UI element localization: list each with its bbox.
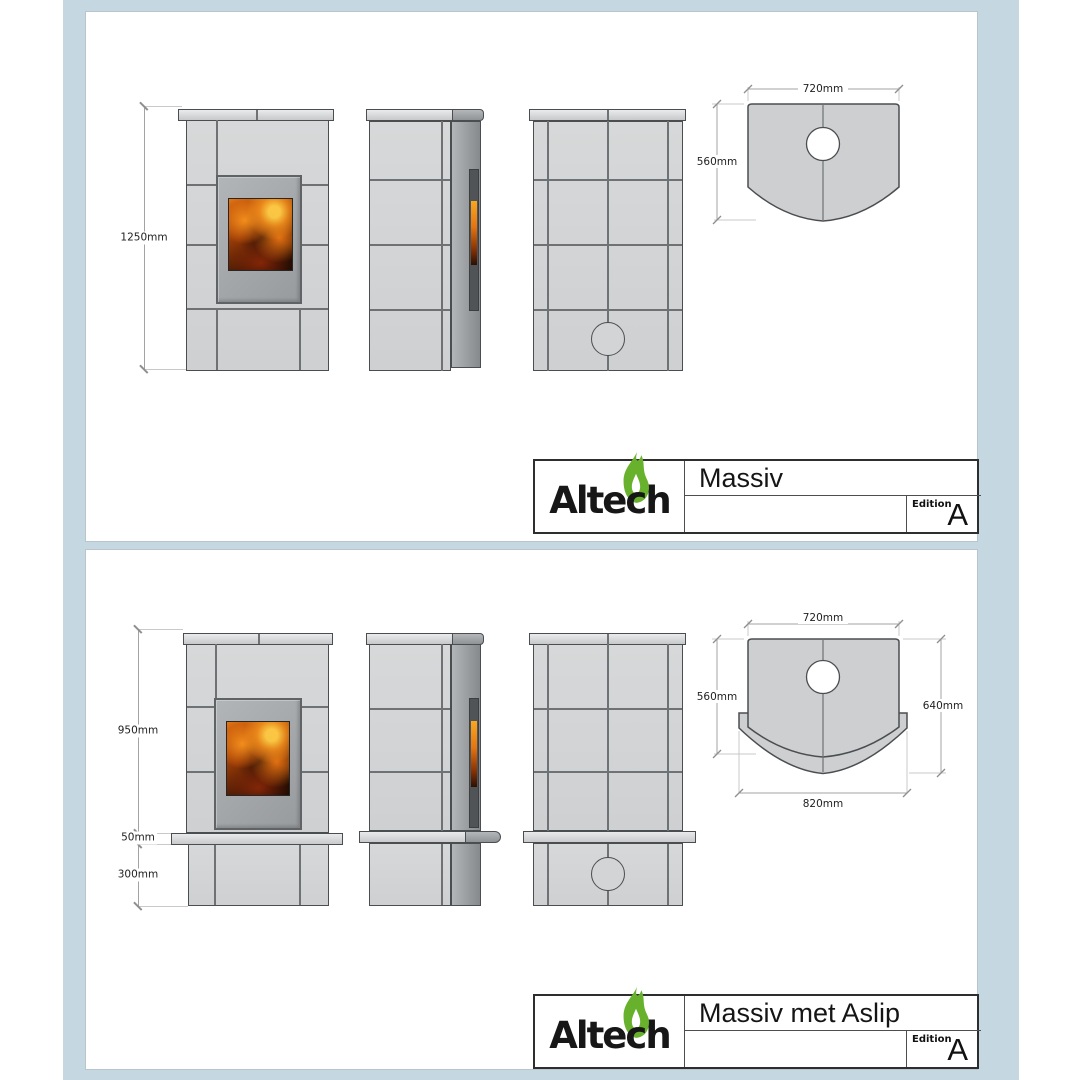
tile-joint <box>370 771 450 773</box>
stove-body <box>369 121 451 371</box>
dimension-label: 950mm <box>116 725 161 738</box>
dimension-label: 720mm <box>803 612 844 624</box>
title-row: Massiv <box>685 461 981 496</box>
tile-joint <box>299 309 301 370</box>
tile-joint <box>441 121 443 371</box>
dimension-label: 640mm <box>923 700 964 712</box>
cap-joint <box>607 634 609 644</box>
tile-joint <box>441 644 443 831</box>
edition-value: A <box>947 1032 968 1068</box>
ash-shelf <box>523 831 696 843</box>
stove-base <box>369 843 451 906</box>
tile-joint <box>302 244 328 246</box>
edition-label: Edition <box>912 1034 952 1045</box>
dimension-label: 560mm <box>697 691 738 703</box>
tile-joint <box>667 844 669 905</box>
logo-cell: Altech <box>535 996 685 1067</box>
flue-hole <box>807 661 840 694</box>
ash-shelf <box>359 831 466 843</box>
title-block: Altech Massiv Edition A <box>533 459 979 534</box>
logo-text: c <box>625 1014 645 1057</box>
tile-joint <box>187 308 328 310</box>
tile-joint <box>187 244 216 246</box>
flue-hole <box>807 128 840 161</box>
stove-top-cap-front <box>452 109 484 121</box>
stove-base <box>188 844 329 906</box>
stove-front-column <box>451 843 481 906</box>
logo-text: Alte <box>549 479 625 522</box>
tile-joint <box>607 644 609 831</box>
top-view: 720mm 560mm 640mm 820mm <box>696 601 986 831</box>
tile-joint <box>547 121 549 371</box>
dimension-label: 820mm <box>803 798 844 810</box>
extension-line <box>144 369 186 370</box>
tile-joint <box>370 179 450 181</box>
tile-joint <box>187 184 216 186</box>
drawing-title: Massiv <box>699 463 783 494</box>
extension-line <box>144 106 182 107</box>
dimension-label: 300mm <box>116 869 161 882</box>
sheet-massiv-met-aslip: 950mm 50mm 300mm <box>85 549 978 1070</box>
fire-sliver <box>471 721 477 787</box>
edition-cell: Edition A <box>906 496 977 532</box>
logo-text: Alte <box>549 1014 625 1057</box>
extension-line <box>138 629 183 630</box>
tile-joint <box>370 244 450 246</box>
dimension-label: 560mm <box>697 156 738 168</box>
stove-top-cap <box>366 109 454 121</box>
drawing-canvas: 1250mm <box>0 0 1080 1080</box>
altech-logo: Altech <box>549 1014 669 1057</box>
tile-joint <box>187 706 214 708</box>
tile-joint <box>302 706 328 708</box>
logo-cell: Altech <box>535 461 685 532</box>
stove-body <box>369 644 451 831</box>
fire-window <box>228 198 293 271</box>
tile-joint <box>215 644 217 698</box>
tile-joint <box>216 309 218 370</box>
tile-joint <box>547 644 549 831</box>
top-view: 720mm 560mm <box>696 61 986 241</box>
dimension-label: 1250mm <box>118 232 169 245</box>
edition-value: A <box>947 497 968 533</box>
tile-joint <box>216 120 218 175</box>
flue-outlet-circle <box>591 857 625 891</box>
fire-sliver <box>471 201 477 265</box>
tile-joint <box>299 845 301 905</box>
cap-joint <box>256 110 258 120</box>
tile-joint <box>214 845 216 905</box>
tile-joint <box>667 121 669 371</box>
fire-window <box>226 721 290 796</box>
tile-joint <box>441 844 443 905</box>
tile-joint <box>370 708 450 710</box>
tile-joint <box>187 771 214 773</box>
dimension-line <box>138 629 139 906</box>
flue-outlet-circle <box>591 322 625 356</box>
tile-joint <box>667 644 669 831</box>
edition-label: Edition <box>912 499 952 510</box>
sheet-massiv: 1250mm <box>85 11 978 542</box>
dimension-label: 50mm <box>119 832 157 845</box>
title-row: Massiv met Aslip <box>685 996 981 1031</box>
tile-joint <box>302 771 328 773</box>
altech-logo: Altech <box>549 479 669 522</box>
cap-joint <box>258 634 260 644</box>
cap-joint <box>607 110 609 120</box>
tile-joint <box>547 844 549 905</box>
drawing-title: Massiv met Aslip <box>699 998 900 1029</box>
tile-joint <box>370 309 450 311</box>
extension-line <box>138 906 188 907</box>
logo-text: c <box>625 479 645 522</box>
dimension-label: 720mm <box>803 83 844 95</box>
tile-joint <box>302 184 328 186</box>
title-block: Altech Massiv met Aslip Edition A <box>533 994 979 1069</box>
ash-shelf-front <box>465 831 501 843</box>
edition-cell: Edition A <box>906 1031 977 1067</box>
